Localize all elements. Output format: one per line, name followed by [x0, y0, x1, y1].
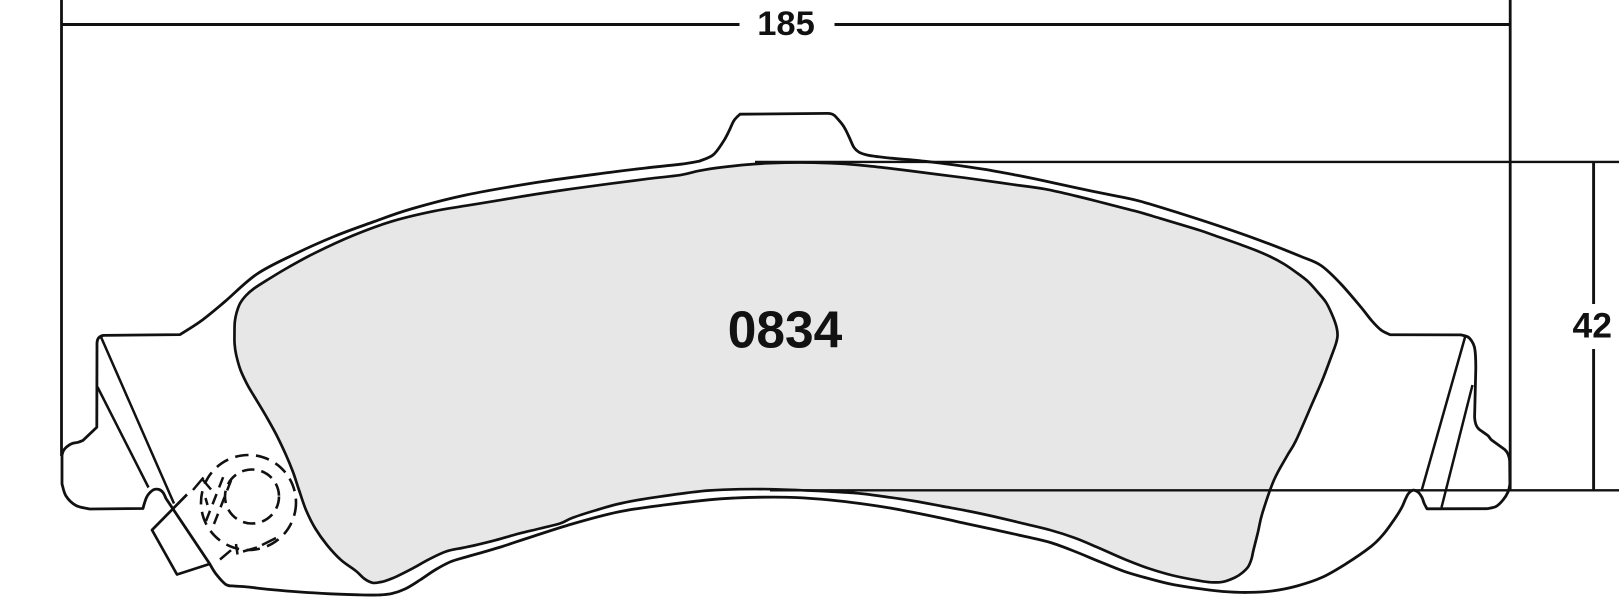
svg-text:42: 42: [1573, 306, 1613, 346]
svg-text:185: 185: [757, 5, 815, 43]
svg-text:0834: 0834: [728, 301, 843, 359]
